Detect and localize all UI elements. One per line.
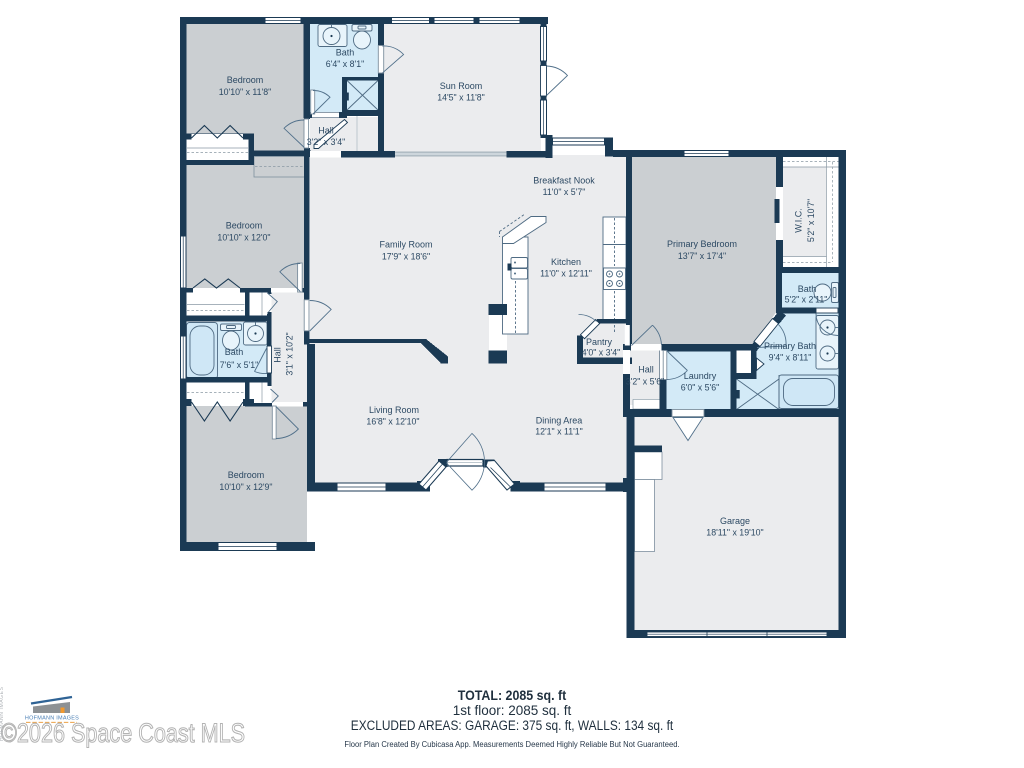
svg-text:16'8" x 12'10": 16'8" x 12'10" — [366, 417, 419, 427]
svg-text:W.I.C.: W.I.C. — [794, 208, 804, 233]
svg-text:3'2" x 3'4": 3'2" x 3'4" — [307, 137, 345, 147]
svg-text:3'2" x 5'6": 3'2" x 5'6" — [626, 377, 664, 387]
svg-text:Primary Bath: Primary Bath — [764, 341, 816, 351]
svg-text:Hall: Hall — [638, 365, 654, 375]
svg-text:6'0" x 5'6": 6'0" x 5'6" — [681, 383, 719, 393]
svg-text:Laundry: Laundry — [684, 371, 717, 381]
svg-text:Bedroom: Bedroom — [226, 221, 263, 231]
svg-text:11'0" x 5'7": 11'0" x 5'7" — [543, 187, 586, 197]
svg-text:5'2" x 2'11": 5'2" x 2'11" — [785, 295, 828, 305]
svg-text:Sun Room: Sun Room — [440, 81, 483, 91]
svg-text:Primary Bedroom: Primary Bedroom — [667, 239, 737, 249]
svg-text:Bedroom: Bedroom — [227, 75, 264, 85]
svg-text:9'4" x 8'11": 9'4" x 8'11" — [769, 352, 812, 362]
svg-text:5'2" x 10'7": 5'2" x 10'7" — [806, 199, 816, 242]
svg-text:10'10" x 12'0": 10'10" x 12'0" — [217, 233, 270, 243]
svg-text:Breakfast Nook: Breakfast Nook — [533, 176, 595, 186]
svg-text:Living Room: Living Room — [369, 405, 419, 415]
svg-text:Kitchen: Kitchen — [551, 257, 581, 267]
svg-text:Hall: Hall — [318, 126, 334, 136]
svg-text:Bath: Bath — [798, 284, 817, 294]
svg-text:12'1" x 11'1": 12'1" x 11'1" — [535, 426, 583, 436]
svg-text:17'9" x 18'6": 17'9" x 18'6" — [382, 252, 430, 262]
svg-text:10'10" x 12'9": 10'10" x 12'9" — [219, 482, 272, 492]
svg-text:Dining Area: Dining Area — [536, 416, 583, 426]
svg-text:3'1" x 10'2": 3'1" x 10'2" — [285, 332, 295, 375]
svg-text:10'10" x 11'8": 10'10" x 11'8" — [219, 87, 272, 97]
svg-text:14'5" x 11'8": 14'5" x 11'8" — [437, 93, 485, 103]
svg-text:6'4" x 8'1": 6'4" x 8'1" — [326, 59, 364, 69]
svg-text:Bedroom: Bedroom — [228, 470, 265, 480]
svg-text:7'6" x 5'1": 7'6" x 5'1" — [220, 360, 258, 370]
svg-text:13'7" x 17'4": 13'7" x 17'4" — [678, 251, 726, 261]
svg-text:11'0" x 12'11": 11'0" x 12'11" — [540, 269, 592, 279]
svg-text:18'11" x 19'10": 18'11" x 19'10" — [706, 528, 763, 538]
svg-text:Family Room: Family Room — [379, 240, 432, 250]
svg-text:Garage: Garage — [720, 516, 750, 526]
svg-text:Bath: Bath — [225, 347, 244, 357]
svg-text:Bath: Bath — [336, 48, 355, 58]
svg-text:Pantry: Pantry — [586, 337, 613, 347]
svg-text:4'0" x 3'4": 4'0" x 3'4" — [582, 348, 620, 358]
svg-text:Hall: Hall — [273, 347, 283, 363]
